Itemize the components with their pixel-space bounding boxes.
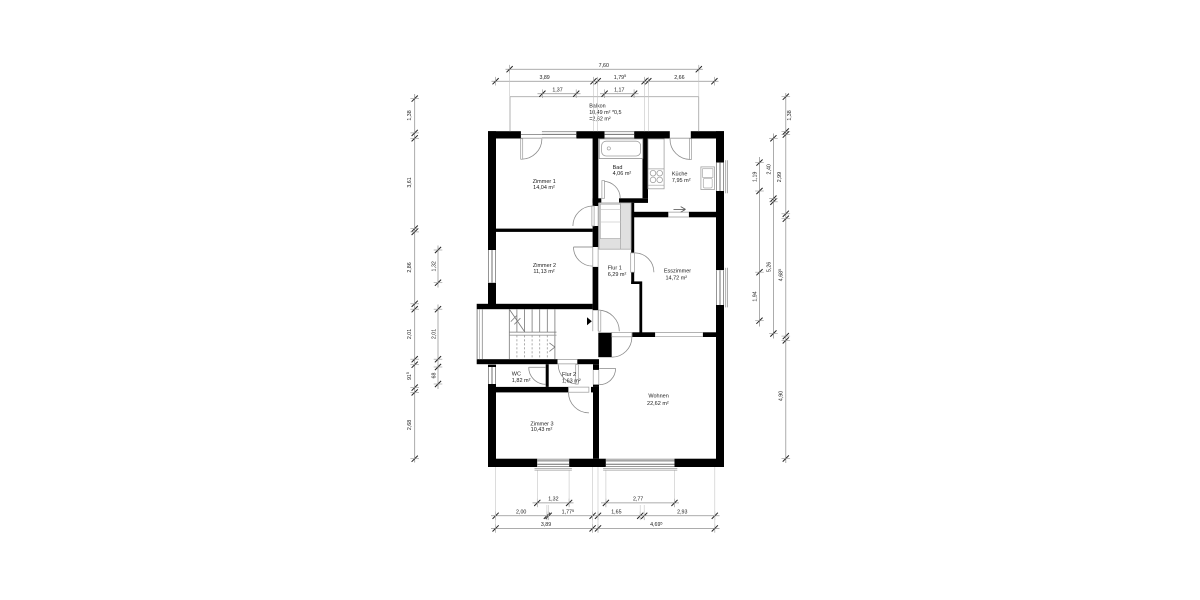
svg-text:Flur 2: Flur 2 xyxy=(562,372,576,378)
svg-text:2,66: 2,66 xyxy=(674,75,684,81)
svg-text:22,62 m²: 22,62 m² xyxy=(647,401,669,407)
svg-text:2,01: 2,01 xyxy=(407,329,413,339)
svg-text:3,89: 3,89 xyxy=(541,522,551,528)
svg-text:Wohnen: Wohnen xyxy=(648,394,668,400)
svg-text:WC: WC xyxy=(512,371,521,377)
svg-text:5,26: 5,26 xyxy=(766,262,772,272)
svg-text:1,65: 1,65 xyxy=(611,510,621,516)
svg-text:2,86: 2,86 xyxy=(407,262,413,272)
svg-text:68: 68 xyxy=(431,373,437,379)
svg-text:1,37: 1,37 xyxy=(552,87,562,93)
svg-text:1,38: 1,38 xyxy=(407,110,413,120)
svg-text:10,49 m² *0,5: 10,49 m² *0,5 xyxy=(589,110,621,116)
svg-text:1,82 m²: 1,82 m² xyxy=(512,378,531,384)
svg-text:4,06 m²: 4,06 m² xyxy=(613,171,632,177)
svg-text:=2,62 m²: =2,62 m² xyxy=(589,116,611,122)
svg-text:1,17: 1,17 xyxy=(614,87,624,93)
svg-text:1,94: 1,94 xyxy=(753,291,759,301)
svg-text:2,68: 2,68 xyxy=(407,420,413,430)
svg-text:14,72 m²: 14,72 m² xyxy=(665,276,687,282)
svg-text:Bad: Bad xyxy=(613,165,623,171)
svg-text:10,43 m²: 10,43 m² xyxy=(531,427,553,433)
svg-text:2,93: 2,93 xyxy=(677,510,687,516)
svg-text:14,04 m²: 14,04 m² xyxy=(533,185,555,191)
svg-text:11,13 m²: 11,13 m² xyxy=(533,269,554,275)
svg-text:3,89: 3,89 xyxy=(539,75,549,81)
svg-text:1,38: 1,38 xyxy=(787,110,793,120)
svg-text:Esszimmer: Esszimmer xyxy=(664,269,691,275)
svg-text:7,95 m²: 7,95 m² xyxy=(672,178,691,184)
svg-text:7,60: 7,60 xyxy=(599,63,609,69)
svg-text:Küche: Küche xyxy=(672,171,688,177)
svg-text:6,29 m²: 6,29 m² xyxy=(608,272,627,278)
svg-text:Flur 1: Flur 1 xyxy=(608,265,622,271)
svg-text:1,32: 1,32 xyxy=(431,261,437,271)
svg-text:Zimmer 1: Zimmer 1 xyxy=(533,179,556,185)
svg-text:1,19: 1,19 xyxy=(753,172,759,182)
svg-text:2,00: 2,00 xyxy=(516,510,526,516)
svg-text:2,40: 2,40 xyxy=(766,164,772,174)
svg-text:1,32: 1,32 xyxy=(548,497,558,503)
svg-text:2,77: 2,77 xyxy=(633,497,643,503)
svg-text:2,01: 2,01 xyxy=(431,329,437,339)
svg-text:2,99: 2,99 xyxy=(777,172,783,182)
svg-text:4,90: 4,90 xyxy=(779,391,785,401)
svg-text:3,61: 3,61 xyxy=(407,177,413,187)
svg-text:1,63 m²: 1,63 m² xyxy=(562,378,581,384)
